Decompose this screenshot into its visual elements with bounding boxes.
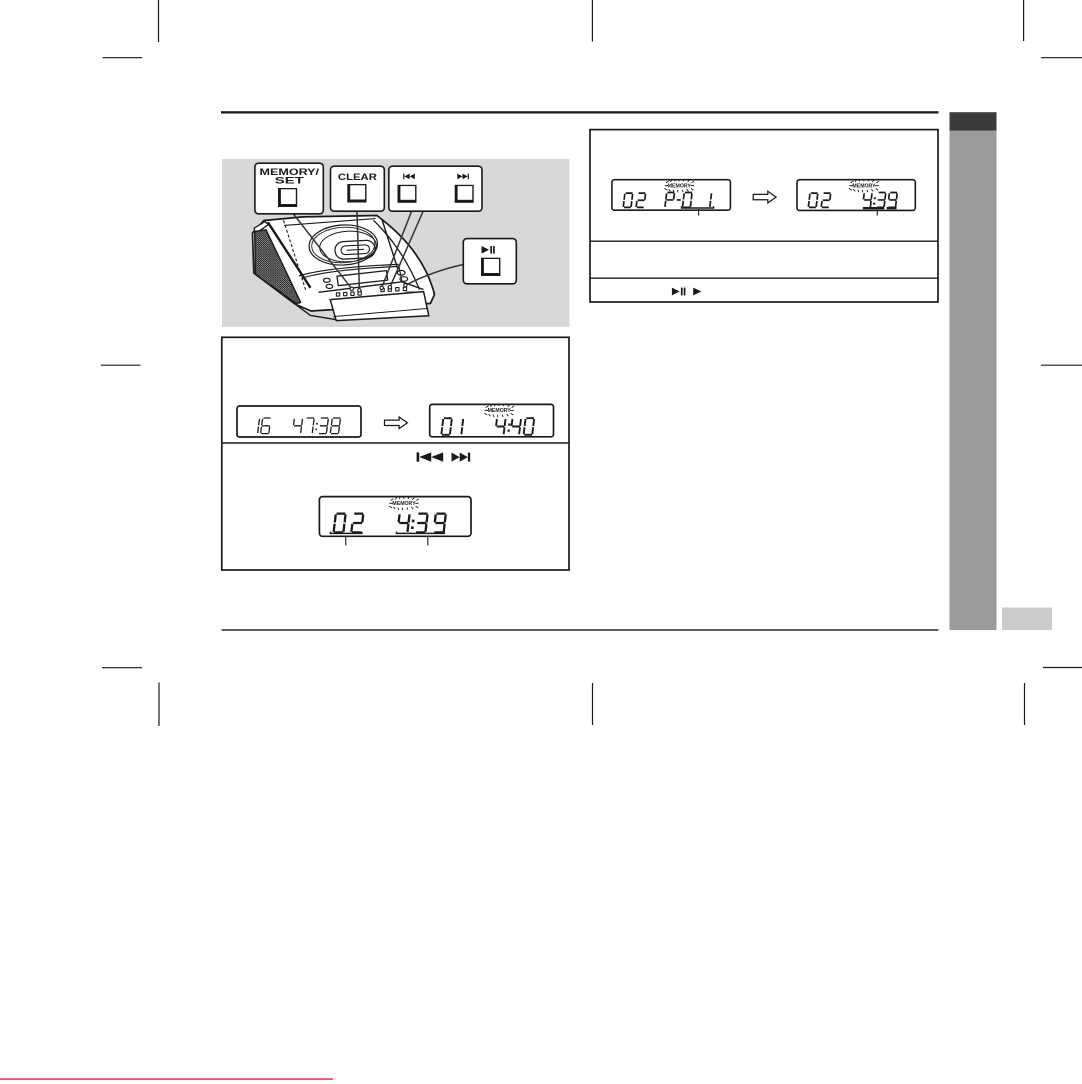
svg-text:MEMORY: MEMORY <box>488 408 512 414</box>
svg-text:CLEAR: CLEAR <box>338 171 377 182</box>
svg-text:MEMORY: MEMORY <box>668 183 692 189</box>
svg-text:MEMORY: MEMORY <box>392 501 416 507</box>
svg-text:MEMORY: MEMORY <box>852 183 876 189</box>
svg-text:SET: SET <box>275 174 304 185</box>
